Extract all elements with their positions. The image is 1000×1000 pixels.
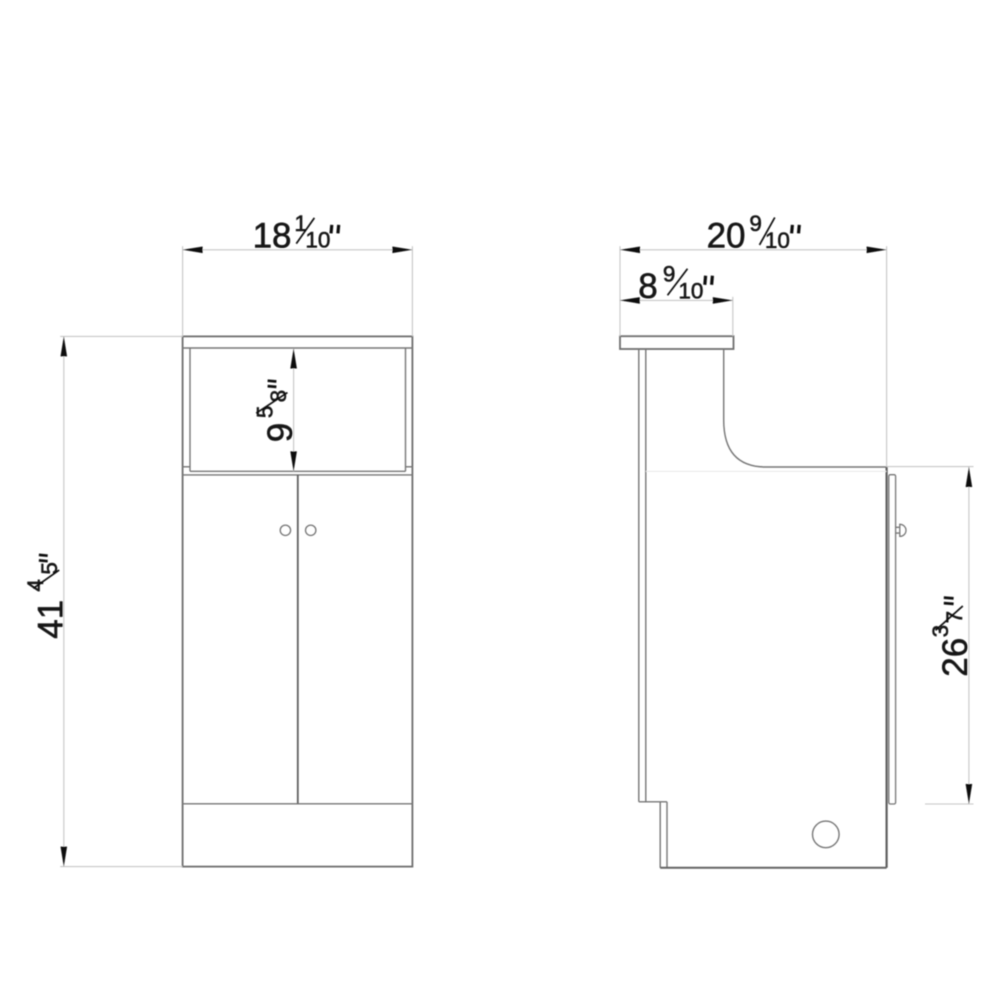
svg-text:5: 5 — [37, 562, 62, 575]
svg-text:8: 8 — [638, 267, 657, 306]
svg-text:10: 10 — [305, 228, 330, 253]
svg-text:10: 10 — [765, 228, 790, 253]
svg-text:18: 18 — [253, 216, 292, 255]
svg-text:20: 20 — [707, 217, 746, 256]
svg-text:9: 9 — [663, 262, 676, 287]
svg-text:9: 9 — [261, 423, 300, 442]
svg-text:26: 26 — [936, 638, 975, 677]
svg-text:9: 9 — [749, 211, 762, 236]
svg-text:41: 41 — [31, 600, 70, 639]
svg-text:8: 8 — [266, 390, 291, 403]
svg-text:10: 10 — [678, 278, 703, 303]
